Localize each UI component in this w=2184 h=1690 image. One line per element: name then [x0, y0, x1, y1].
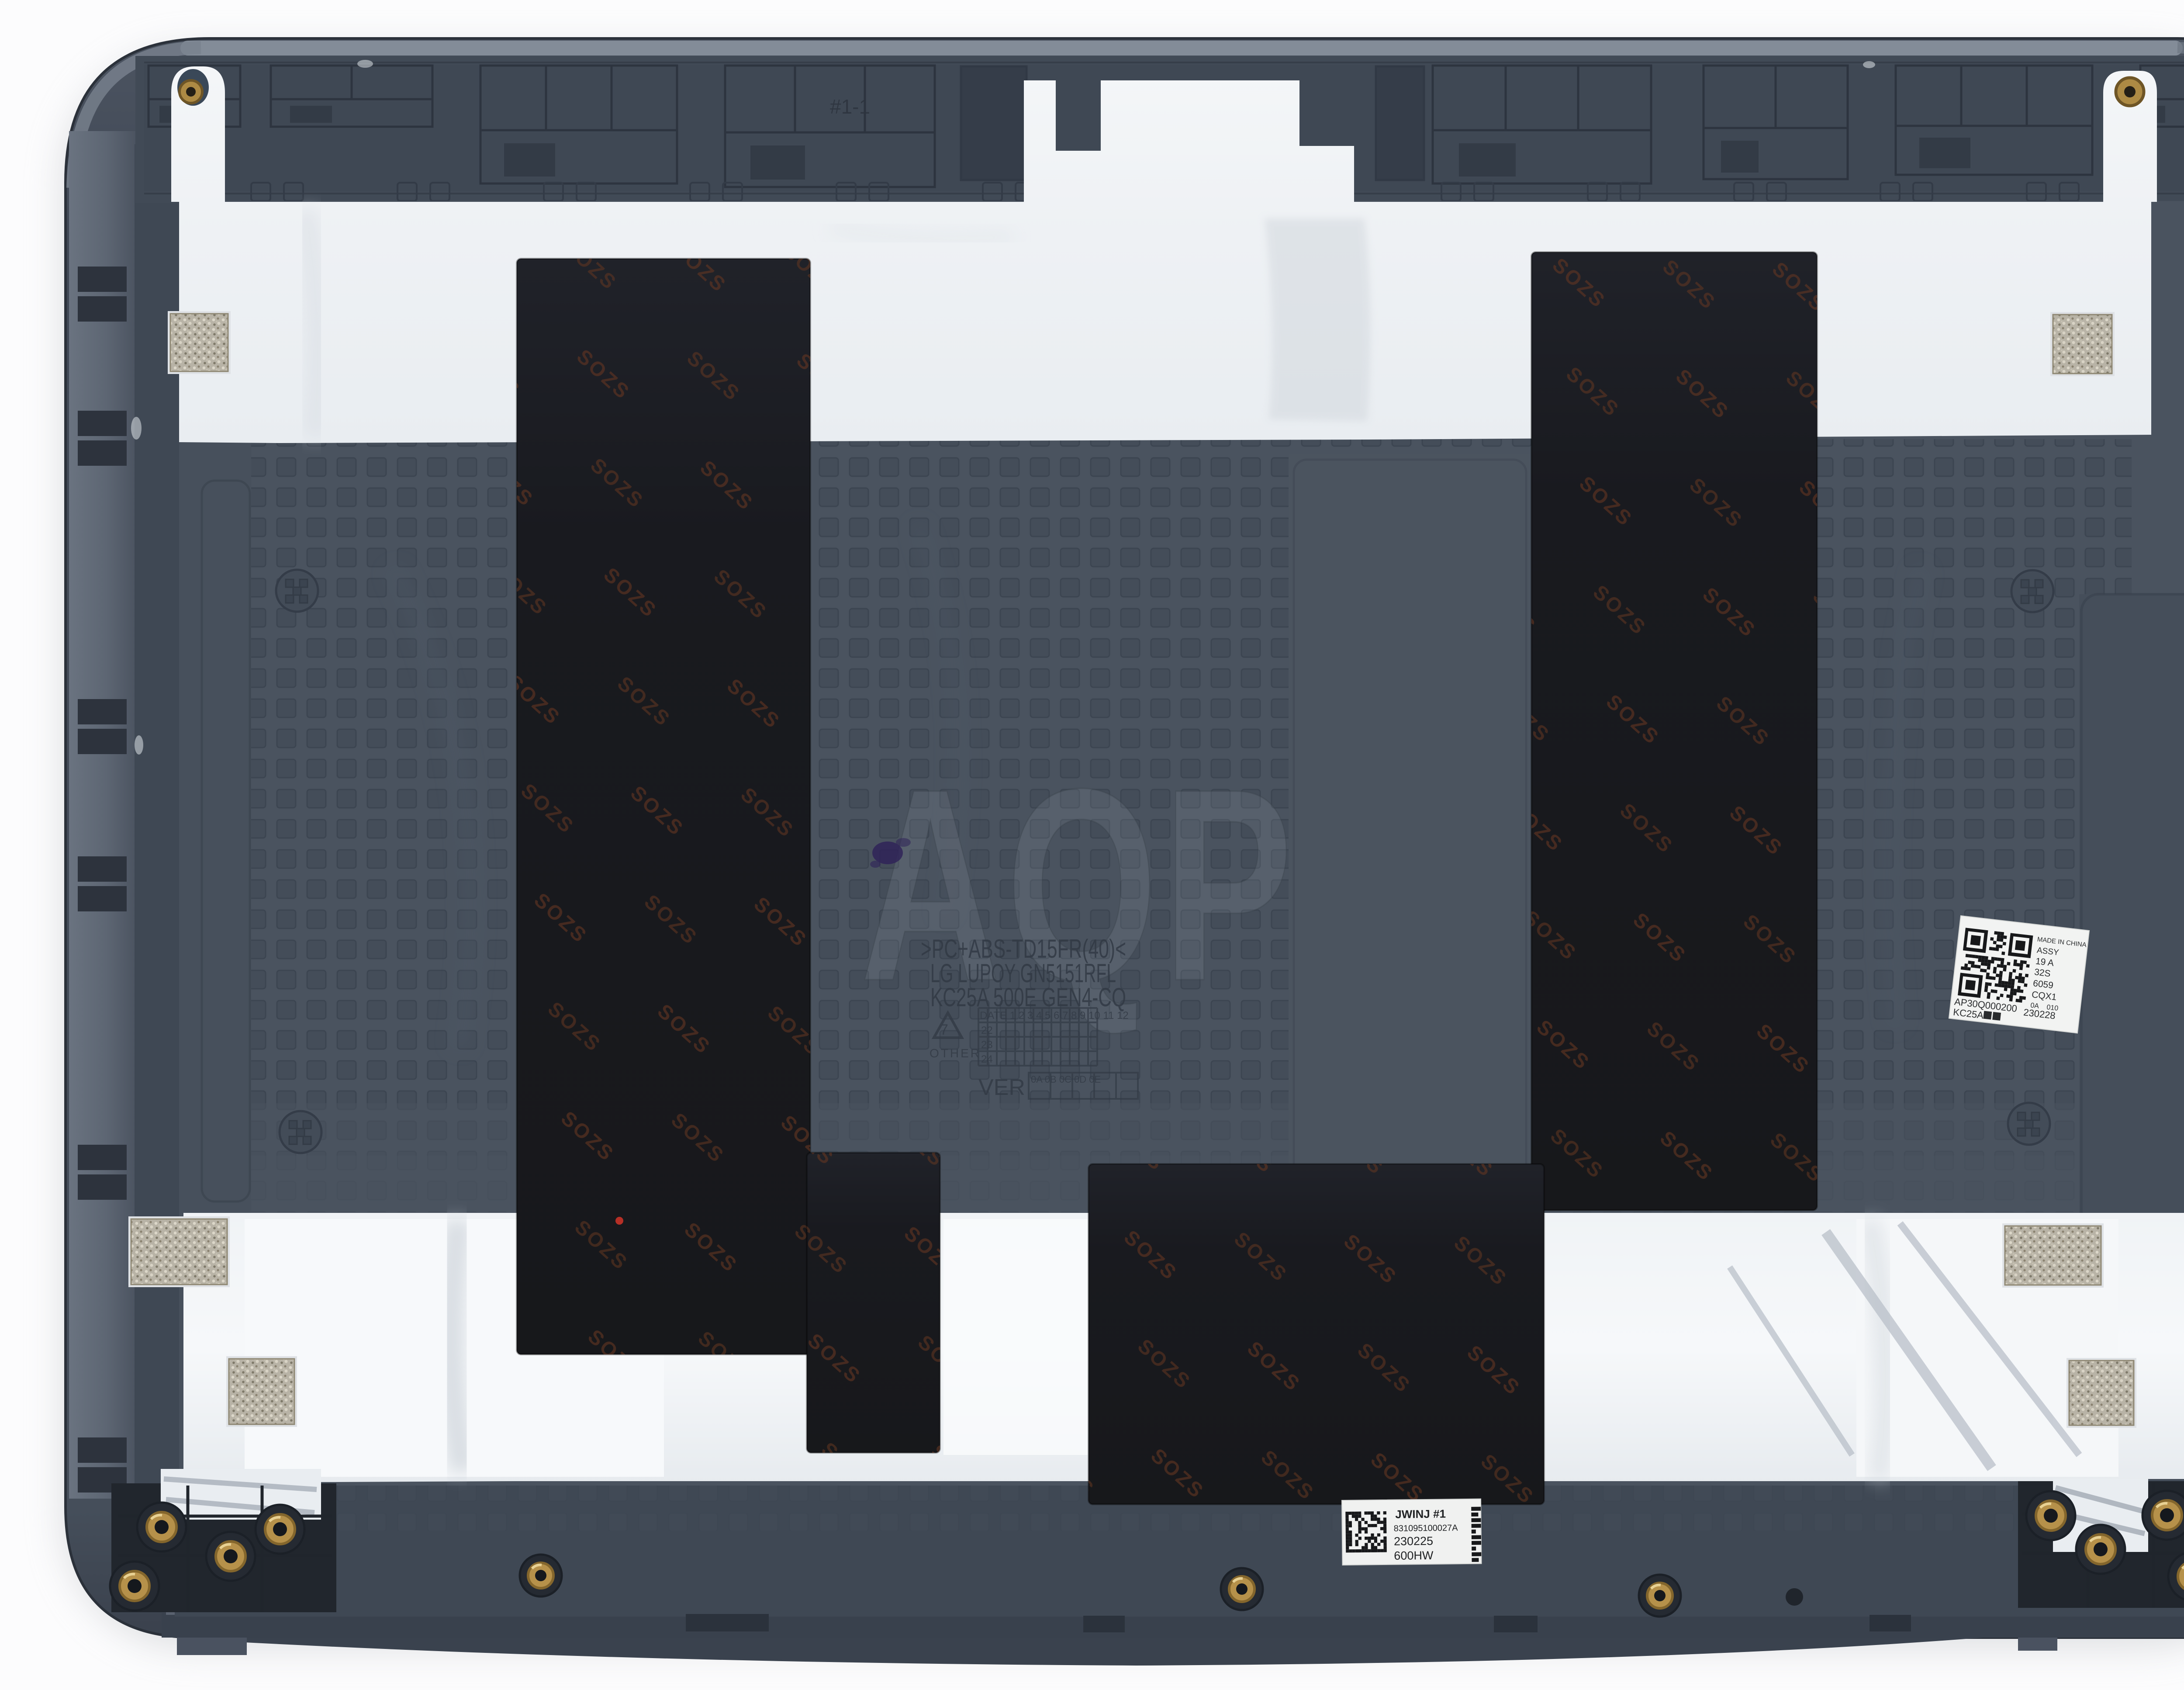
svg-text:JWINJ #1: JWINJ #1 [1395, 1507, 1446, 1521]
svg-text:600HW: 600HW [1394, 1549, 1434, 1562]
svg-text:230225: 230225 [1394, 1534, 1433, 1548]
svg-text:#1-1: #1-1 [830, 95, 870, 118]
svg-text:7: 7 [940, 1022, 948, 1038]
svg-text:32S: 32S [2034, 967, 2051, 979]
svg-text:19 A: 19 A [2035, 956, 2054, 968]
svg-text:OTHER: OTHER [930, 1046, 981, 1060]
svg-text:0A 0B 0C 0D 0E: 0A 0B 0C 0D 0E [1031, 1074, 1101, 1085]
svg-text:23: 23 [981, 1039, 993, 1051]
svg-text:831095100027A: 831095100027A [1394, 1523, 1458, 1534]
svg-text:DATE 1 2 3 4 5 6 7 8 9 10 11 1: DATE 1 2 3 4 5 6 7 8 9 10 11 12 [980, 1010, 1129, 1022]
svg-text:22: 22 [981, 1025, 993, 1036]
svg-text:VER: VER [978, 1075, 1025, 1100]
svg-text:24: 24 [981, 1053, 993, 1065]
